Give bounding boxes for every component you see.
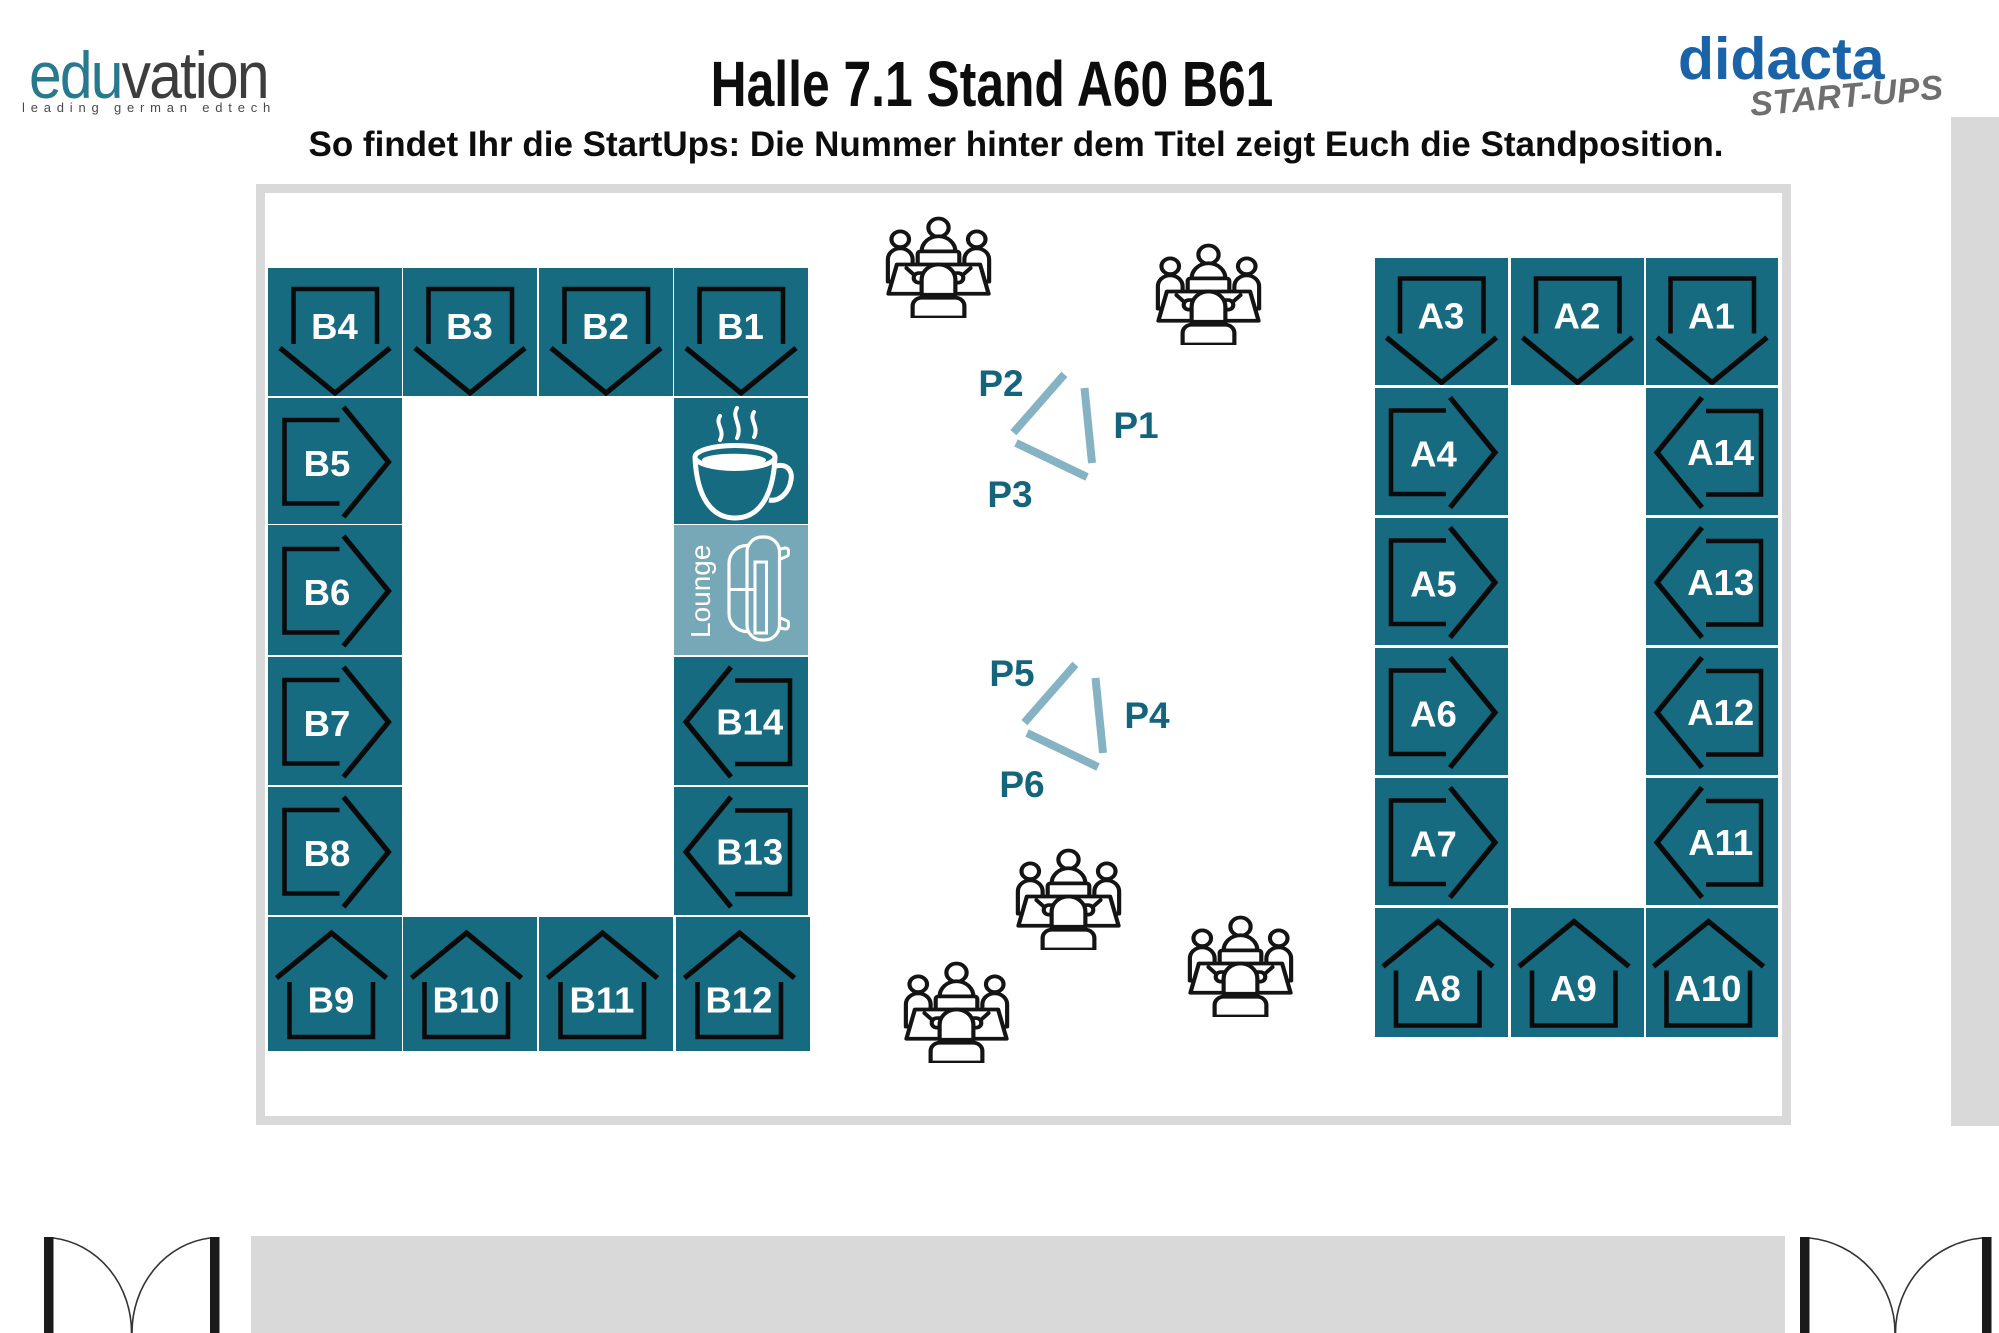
svg-text:B3: B3 xyxy=(446,306,493,347)
svg-text:B2: B2 xyxy=(582,306,629,347)
svg-text:A7: A7 xyxy=(1410,824,1457,865)
svg-text:A10: A10 xyxy=(1675,968,1742,1009)
svg-text:A12: A12 xyxy=(1687,692,1754,733)
svg-text:B14: B14 xyxy=(716,701,784,742)
svg-text:A1: A1 xyxy=(1688,296,1735,337)
svg-text:A5: A5 xyxy=(1410,564,1457,605)
svg-text:A3: A3 xyxy=(1418,296,1465,337)
svg-text:B4: B4 xyxy=(311,306,358,347)
svg-text:B12: B12 xyxy=(706,979,773,1020)
svg-text:B13: B13 xyxy=(716,831,783,872)
svg-text:A14: A14 xyxy=(1687,432,1755,473)
svg-text:B7: B7 xyxy=(304,703,351,744)
svg-text:B10: B10 xyxy=(433,979,500,1020)
svg-text:B9: B9 xyxy=(308,979,355,1020)
svg-text:B6: B6 xyxy=(304,572,351,613)
svg-text:B1: B1 xyxy=(717,306,764,347)
svg-text:A2: A2 xyxy=(1554,296,1601,337)
svg-text:B5: B5 xyxy=(304,443,351,484)
svg-text:A4: A4 xyxy=(1410,434,1457,475)
svg-text:A6: A6 xyxy=(1410,694,1457,735)
svg-text:A9: A9 xyxy=(1550,968,1597,1009)
svg-text:B11: B11 xyxy=(570,979,635,1020)
svg-text:A8: A8 xyxy=(1414,968,1461,1009)
svg-text:A13: A13 xyxy=(1687,562,1754,603)
svg-text:B8: B8 xyxy=(304,833,351,874)
svg-text:A11: A11 xyxy=(1688,822,1753,863)
